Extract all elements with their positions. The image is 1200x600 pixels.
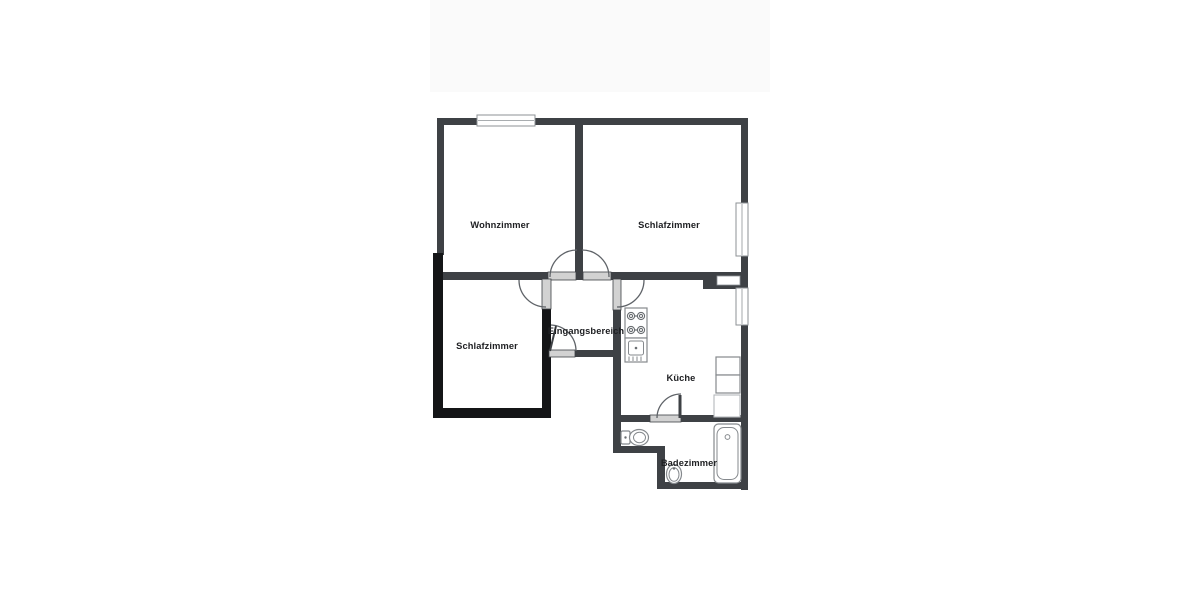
bathtub-icon	[714, 424, 741, 483]
door-slab-kueche	[613, 279, 621, 310]
room-label-schlafzimmer-lower: Schlafzimmer	[456, 341, 518, 351]
door-slab-wohnzimmer	[548, 272, 576, 280]
room-label-wohnzimmer: Wohnzimmer	[470, 220, 529, 230]
door-slab-entrance	[549, 350, 575, 357]
wall-left-upper	[437, 118, 444, 255]
room-label-eingangsbereich: Eingangsbereich	[548, 326, 625, 336]
door-slabs	[542, 272, 681, 422]
wall-divider-top-rooms	[575, 118, 583, 280]
stove-icon	[625, 308, 647, 338]
door-slab-badezimmer	[650, 415, 681, 422]
wall-exterior-left	[433, 253, 443, 418]
door-arc-badezimmer	[657, 394, 681, 418]
window-top-icon	[477, 115, 535, 126]
floorplan-canvas: Wohnzimmer Schlafzimmer Schlafzimmer Ein…	[0, 0, 1200, 600]
kitchen-sink-icon	[625, 338, 647, 362]
bathroom-fixtures	[621, 424, 741, 484]
wall-exterior-bottom	[433, 408, 551, 418]
room-label-kueche: Küche	[667, 373, 696, 383]
walls-interior	[437, 118, 748, 490]
room-label-badezimmer: Badezimmer	[661, 458, 718, 468]
door-slab-schlafzimmer-lower	[542, 279, 551, 309]
wall-niche-inset	[717, 276, 740, 285]
toilet-icon	[621, 430, 649, 446]
wall-wohnzimmer-bottom	[437, 272, 548, 280]
floorplan-drawing: Wohnzimmer Schlafzimmer Schlafzimmer Ein…	[0, 0, 1200, 600]
kitchen-counter	[714, 357, 740, 417]
door-slab-schlafzimmer-top	[583, 272, 611, 280]
window-right-kueche-icon	[736, 288, 748, 325]
window-right-schlafzimmer-icon	[736, 203, 748, 256]
kitchen-fixtures	[625, 308, 740, 417]
room-labels: Wohnzimmer Schlafzimmer Schlafzimmer Ein…	[456, 220, 717, 468]
wall-bath-nook-bottom	[613, 446, 663, 453]
wall-exterior-right	[542, 308, 551, 418]
room-label-schlafzimmer-top: Schlafzimmer	[638, 220, 700, 230]
